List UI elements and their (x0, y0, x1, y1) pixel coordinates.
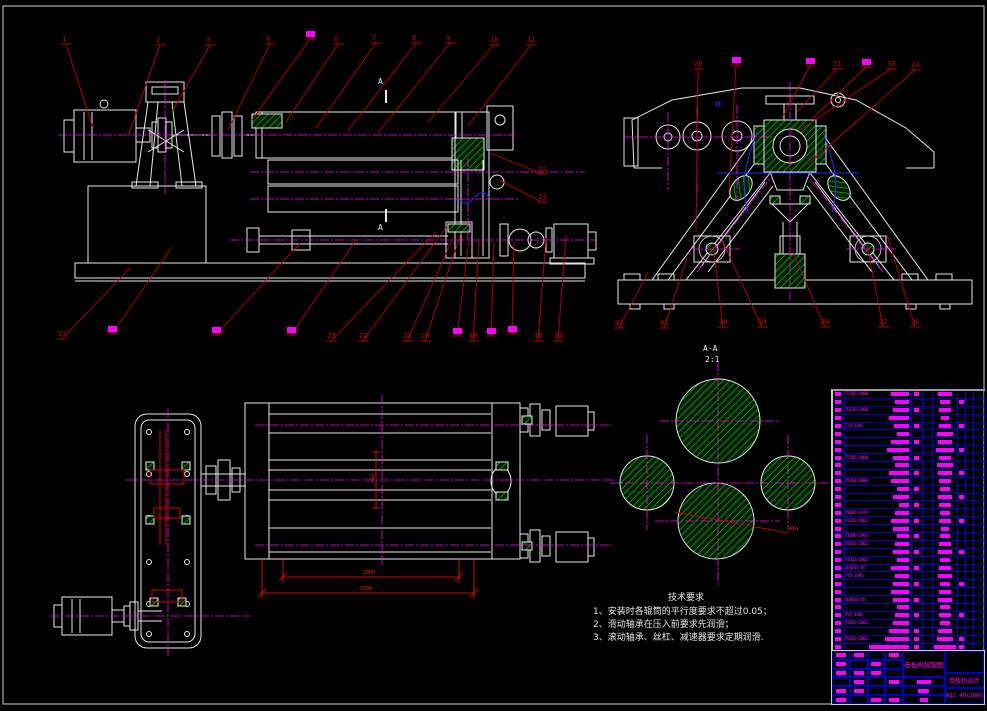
standard-code: T75-1985 (845, 423, 863, 428)
parts-list-row: T4323-2002 (833, 541, 985, 549)
title-block-cell (850, 660, 868, 669)
parts-cell (923, 541, 933, 548)
parts-cell (974, 399, 985, 406)
title-block-cell (850, 669, 868, 678)
parts-cell: T1095-1979 (845, 509, 912, 516)
parts-cell (974, 580, 985, 587)
parts-cell (974, 454, 985, 461)
parts-cell (933, 423, 959, 430)
tech-req-line-1: 1、安装时各辊筒的平行度要求不超过0.05； (593, 608, 772, 617)
parts-cell (833, 604, 845, 611)
section-leader-label: 41a (789, 527, 798, 532)
balloon-quicktext-block (487, 328, 496, 334)
standard-code: T5782-2000 (845, 479, 868, 484)
leader-line (792, 250, 825, 327)
standard-code: T4323-2002 (845, 621, 868, 626)
parts-cell (958, 430, 966, 437)
parts-cell (933, 517, 959, 524)
parts-cell (912, 541, 923, 548)
standard-code: T4323-2002 (845, 518, 868, 523)
leader-line (316, 43, 376, 128)
leader-line (800, 69, 891, 130)
parts-list-row (833, 501, 985, 509)
balloon-7: 7 (372, 35, 376, 42)
dim-overall-length: 2500 (360, 587, 372, 592)
section-label: A-A (703, 345, 717, 353)
parts-cell (966, 438, 974, 445)
balloon-quicktext-block (108, 326, 117, 332)
parts-cell: T5782-2000 (845, 478, 912, 485)
title-block-cell (832, 686, 850, 695)
parts-list-row: T4323-2002 (833, 636, 985, 644)
parts-cell (845, 501, 912, 508)
parts-cell (966, 470, 974, 477)
standard-code: T4323-2002 (845, 557, 868, 562)
parts-cell (923, 430, 933, 437)
parts-cell (912, 486, 923, 493)
parts-cell (833, 399, 845, 406)
parts-cell (974, 494, 985, 501)
title-block-cell (832, 669, 850, 678)
parts-cell (923, 423, 933, 430)
leader-line (713, 245, 723, 327)
parts-cell (974, 509, 985, 516)
balloon-27: 27 (58, 331, 66, 338)
title-block-cell (885, 686, 903, 695)
parts-cell (923, 549, 933, 556)
parts-cell (974, 604, 985, 611)
parts-cell (923, 636, 933, 643)
parts-cell (833, 509, 845, 516)
standard-code: T1096-1994 (845, 534, 868, 539)
parts-cell (833, 391, 845, 398)
parts-list-row: T5782-2000 (833, 478, 985, 486)
standard-code: T75-1985 (845, 573, 863, 578)
parts-cell (958, 525, 966, 532)
leader-line (286, 44, 338, 122)
parts-cell (833, 454, 845, 461)
leader-line (112, 247, 172, 334)
parts-cell (923, 494, 933, 501)
parts-cell (958, 517, 966, 524)
parts-cell (923, 533, 933, 540)
leader-line (558, 235, 566, 341)
title-block-cell (903, 695, 944, 704)
leader-line (62, 268, 130, 339)
parts-cell (923, 525, 933, 532)
parts-cell (966, 446, 974, 453)
parts-list-row: T1095-1979 (833, 509, 985, 517)
parts-cell (974, 612, 985, 619)
parts-cell (912, 533, 923, 540)
dim-roller-length: 2000 (363, 571, 375, 576)
parts-cell (923, 588, 933, 595)
parts-cell (958, 580, 966, 587)
parts-cell (958, 596, 966, 603)
parts-cell (833, 478, 845, 485)
standard-code: T4323-2002 (845, 542, 868, 547)
parts-cell (912, 517, 923, 524)
parts-cell (974, 478, 985, 485)
title-block-cell (850, 677, 868, 686)
parts-cell (958, 486, 966, 493)
leader-line (491, 242, 494, 336)
balloon-39: 39 (758, 319, 766, 326)
parts-cell (845, 486, 912, 493)
balloon-40: 40 (719, 319, 727, 326)
parts-cell: T4323-2002 (845, 557, 912, 564)
parts-list-row (833, 438, 985, 446)
parts-list-row (833, 399, 985, 407)
parts-cell (958, 423, 966, 430)
parts-cell (923, 572, 933, 579)
parts-cell (958, 620, 966, 627)
leader-line (729, 65, 736, 192)
parts-cell (845, 628, 912, 635)
parts-cell (845, 470, 912, 477)
balloon-42: 42 (615, 320, 623, 327)
parts-cell (966, 565, 974, 572)
parts-list-row (833, 580, 985, 588)
parts-cell (923, 399, 933, 406)
parts-cell (833, 533, 845, 540)
parts-cell (974, 628, 985, 635)
standard-code: T1095-1979 (845, 510, 868, 515)
cut-mark-a-top: A (378, 78, 383, 86)
leader-line (378, 43, 450, 133)
parts-cell (966, 494, 974, 501)
parts-list-row: JB4616-85 (833, 596, 985, 604)
parts-cell (958, 509, 966, 516)
parts-cell (933, 486, 959, 493)
tech-req-title: 技术要求 (668, 594, 704, 603)
balloon-33: 33 (887, 61, 895, 68)
parts-cell (912, 446, 923, 453)
parts-list-row (833, 628, 985, 636)
parts-cell (974, 549, 985, 556)
parts-cell (966, 415, 974, 422)
parts-cell (933, 620, 959, 627)
parts-cell (833, 628, 845, 635)
parts-cell (974, 446, 985, 453)
parts-cell (833, 596, 845, 603)
parts-cell (833, 541, 845, 548)
parts-cell (933, 470, 959, 477)
balloon-31: 31 (833, 61, 841, 68)
parts-cell (923, 478, 933, 485)
parts-cell (923, 612, 933, 619)
parts-cell (912, 501, 923, 508)
title-block-cell (885, 660, 903, 669)
parts-cell (958, 415, 966, 422)
balloon-41: 41 (660, 320, 668, 327)
cut-mark-a-bottom: A (378, 224, 383, 232)
title-block-cell (885, 677, 903, 686)
balloon-quicktext-block (806, 58, 815, 64)
parts-cell: T1096-1994 (845, 533, 912, 540)
parts-cell (845, 580, 912, 587)
parts-cell (966, 588, 974, 595)
drawing-name: 卷板机装配图 (904, 659, 943, 669)
parts-cell (933, 494, 959, 501)
parts-cell (833, 486, 845, 493)
parts-cell (966, 572, 974, 579)
parts-cell (966, 525, 974, 532)
leader-line (538, 238, 546, 341)
parts-cell (845, 525, 912, 532)
parts-cell (958, 438, 966, 445)
balloon-quicktext-block (508, 326, 517, 332)
standard-code: T4323-2002 (845, 636, 868, 641)
parts-cell (912, 588, 923, 595)
leader-line (813, 67, 866, 118)
balloon-14: 14 (554, 333, 562, 340)
parts-cell (933, 604, 959, 611)
parts-cell (912, 628, 923, 635)
parts-cell (833, 620, 845, 627)
parts-cell: T4323-2002 (845, 541, 912, 548)
parts-cell (933, 391, 959, 398)
parts-cell (912, 596, 923, 603)
parts-list-row: T4323-2002 (833, 557, 985, 565)
title-block-cell (868, 677, 886, 686)
title-block-cell (868, 669, 886, 678)
parts-cell: T4323-2002 (845, 620, 912, 627)
title-block-cell (850, 686, 868, 695)
title-block-cell (832, 677, 850, 686)
parts-cell (833, 636, 845, 643)
leader-line (348, 43, 416, 131)
parts-cell (923, 517, 933, 524)
parts-cell: T75-1985 (845, 423, 912, 430)
parts-cell (966, 549, 974, 556)
balloon-9: 9 (446, 35, 450, 42)
parts-list-row: T1096-1994 (833, 533, 985, 541)
parts-cell (912, 636, 923, 643)
parts-cell (923, 628, 933, 635)
parts-cell (833, 580, 845, 587)
parts-cell (923, 438, 933, 445)
parts-cell (974, 620, 985, 627)
balloon-34: 34 (911, 62, 919, 69)
standard-code: T75-1985 (845, 613, 863, 618)
balloon-38: 38 (821, 319, 829, 326)
balloon-quicktext-block (732, 57, 741, 63)
parts-cell (966, 391, 974, 398)
balloon-20: 20 (421, 333, 429, 340)
parts-cell (833, 470, 845, 477)
parts-list: T5782-2000T6170-2000T75-1985T5782-2000T5… (831, 389, 985, 650)
parts-cell (958, 446, 966, 453)
leader-line (128, 45, 160, 136)
parts-cell (974, 438, 985, 445)
balloon-quicktext-block (306, 31, 315, 37)
parts-cell: T75-1985 (845, 612, 912, 619)
title-block-cell (850, 651, 868, 660)
parts-cell (912, 580, 923, 587)
parts-cell (833, 557, 845, 564)
leader-line (291, 240, 356, 335)
parts-cell: T4323-2002 (845, 517, 912, 524)
parts-list-row: T75-1985 (833, 612, 985, 620)
leader-line (867, 245, 883, 327)
title-block-cell (885, 669, 903, 678)
parts-cell (974, 557, 985, 564)
leader-line (473, 238, 479, 341)
title-block-sign-grid (832, 651, 903, 704)
parts-list-row: T75-1985 (833, 423, 985, 431)
parts-cell (923, 470, 933, 477)
parts-cell (974, 517, 985, 524)
parts-cell (974, 525, 985, 532)
standard-code: T5782-2000 (845, 455, 868, 460)
parts-cell (912, 462, 923, 469)
parts-cell (912, 407, 923, 414)
parts-cell (966, 399, 974, 406)
title-block-cell (850, 695, 868, 704)
parts-cell (966, 509, 974, 516)
title-block-cell (903, 686, 944, 695)
parts-cell (966, 462, 974, 469)
parts-cell (933, 525, 959, 532)
parts-cell (833, 438, 845, 445)
parts-cell: T75-1985 (845, 572, 912, 579)
parts-list-row (833, 604, 985, 612)
leader-line (696, 69, 698, 232)
parts-cell (923, 462, 933, 469)
parts-cell (958, 407, 966, 414)
title-block-middle: 卷板机装配图 (903, 651, 944, 704)
parts-cell (912, 557, 923, 564)
title-block-right: 卷板机设计 W12 40x2000 (945, 651, 984, 704)
tech-req-line-3: 3、滚动轴承、丝杠、减速器要求定期润滑. (593, 634, 764, 643)
parts-cell (833, 446, 845, 453)
parts-list-row: T4323-2002 (833, 620, 985, 628)
parts-cell (933, 541, 959, 548)
parts-cell (933, 399, 959, 406)
parts-cell (923, 509, 933, 516)
parts-cell (912, 430, 923, 437)
parts-list-row (833, 446, 985, 454)
parts-cell (974, 541, 985, 548)
parts-cell (833, 549, 845, 556)
parts-cell (923, 580, 933, 587)
parts-cell (933, 549, 959, 556)
parts-cell (958, 604, 966, 611)
parts-list-row: T75-1985 (833, 572, 985, 580)
parts-cell (974, 486, 985, 493)
parts-list-row (833, 494, 985, 502)
balloon-21: 21 (403, 333, 411, 340)
parts-cell (958, 470, 966, 477)
parts-cell (974, 415, 985, 422)
parts-cell (958, 572, 966, 579)
standard-code: T6170-2000 (845, 408, 868, 413)
parts-cell (974, 636, 985, 643)
parts-cell (933, 580, 959, 587)
parts-list-row: T5782-2000 (833, 454, 985, 462)
parts-cell (833, 462, 845, 469)
balloon-15: 15 (534, 333, 542, 340)
parts-cell (845, 399, 912, 406)
parts-cell (974, 596, 985, 603)
parts-cell (966, 501, 974, 508)
title-block-cell (885, 695, 903, 704)
parts-cell (923, 501, 933, 508)
parts-cell (833, 588, 845, 595)
parts-cell (833, 407, 845, 414)
parts-cell (923, 446, 933, 453)
parts-cell (974, 501, 985, 508)
parts-cell (966, 541, 974, 548)
parts-cell (966, 580, 974, 587)
parts-cell (958, 588, 966, 595)
standard-code: JB4616-85 (845, 597, 865, 602)
parts-cell (933, 557, 959, 564)
parts-cell (912, 612, 923, 619)
balloon-4: 4 (266, 36, 270, 43)
parts-cell (912, 620, 923, 627)
balloon-22: 22 (359, 333, 367, 340)
parts-cell (923, 454, 933, 461)
parts-cell (966, 620, 974, 627)
parts-cell (958, 549, 966, 556)
parts-cell (912, 509, 923, 516)
parts-cell (912, 470, 923, 477)
parts-cell (933, 612, 959, 619)
parts-cell: T5782-2000 (845, 391, 912, 398)
title-block-cell (868, 660, 886, 669)
parts-cell (933, 407, 959, 414)
parts-cell (923, 557, 933, 564)
parts-cell (923, 415, 933, 422)
parts-cell (933, 430, 959, 437)
parts-cell (933, 446, 959, 453)
parts-cell (845, 549, 912, 556)
title-block-cell (832, 695, 850, 704)
parts-cell (912, 525, 923, 532)
section-scale: 2:1 (705, 356, 719, 364)
project-name: 卷板机设计 (949, 676, 979, 685)
leader-line (331, 232, 436, 341)
parts-cell (974, 462, 985, 469)
parts-list-row: JB4616-85 (833, 565, 985, 573)
parts-cell (833, 423, 845, 430)
parts-cell (966, 612, 974, 619)
parts-cell (958, 628, 966, 635)
balloon-28: 28 (694, 61, 702, 68)
parts-list-row (833, 462, 985, 470)
leader-line (172, 45, 210, 112)
parts-cell (845, 430, 912, 437)
title-block-cell (832, 651, 850, 660)
parts-cell (933, 533, 959, 540)
tech-req-line-2: 2、滑动轴承在压入前要求先润滑； (593, 621, 734, 630)
balloon-1: 1 (62, 36, 66, 43)
parts-cell (833, 415, 845, 422)
title-block-cell (868, 695, 886, 704)
parts-cell (923, 604, 933, 611)
parts-cell (933, 415, 959, 422)
parts-cell (974, 533, 985, 540)
balloon-10: 10 (490, 37, 498, 44)
title-block-cell (832, 660, 850, 669)
parts-cell (966, 478, 974, 485)
parts-cell (933, 478, 959, 485)
leader-line (797, 69, 837, 112)
parts-cell (845, 604, 912, 611)
balloon-36: 36 (911, 319, 919, 326)
